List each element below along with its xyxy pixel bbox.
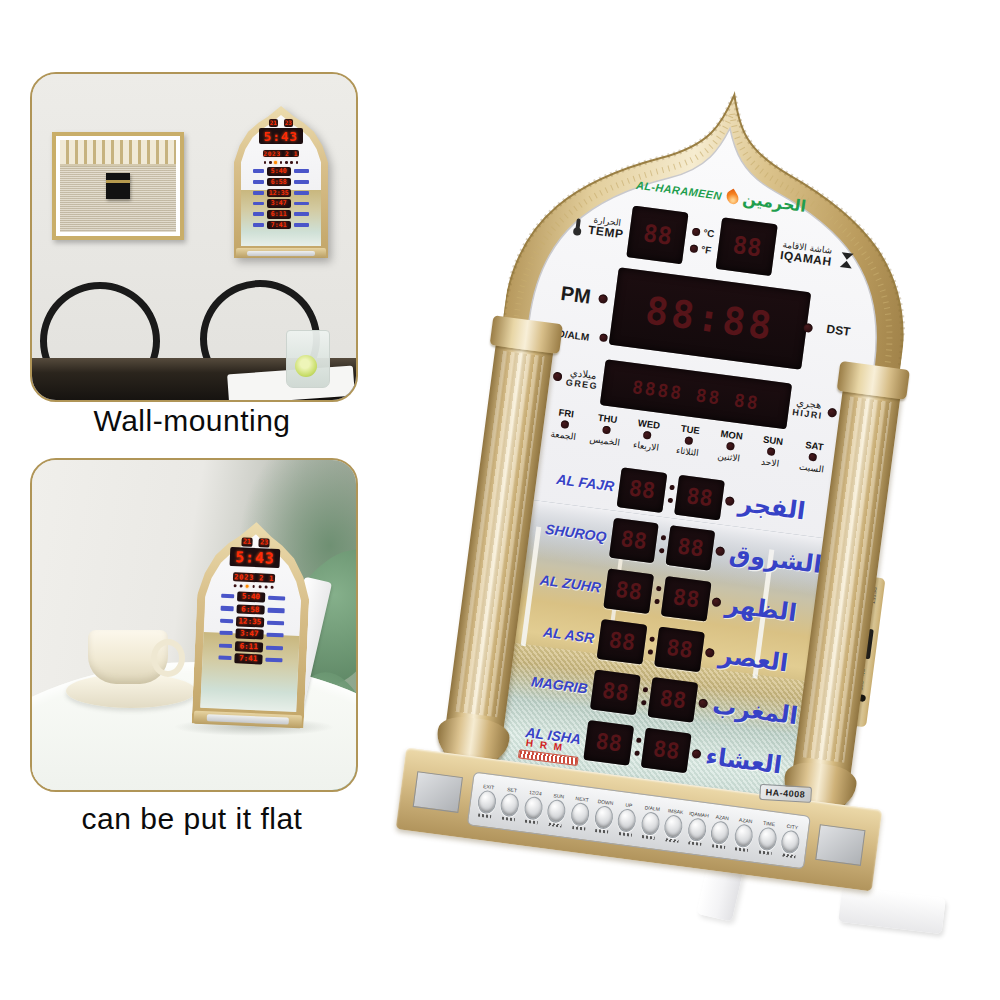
asr-minute-led: 88 bbox=[654, 626, 705, 672]
mini-day-indicators bbox=[264, 161, 299, 164]
mini-time-led: 5:43 bbox=[259, 128, 303, 144]
button-arabic-mark bbox=[572, 825, 585, 830]
magrib-hour-led: 88 bbox=[590, 669, 641, 715]
next-button[interactable] bbox=[570, 801, 591, 826]
button-label: AZAN bbox=[739, 817, 753, 824]
asr-indicator-dot bbox=[704, 648, 714, 658]
flat-placement-photo: 21 23 5:43 2023 2 1 5:40 6:58 12:35 3:47… bbox=[30, 458, 358, 792]
weekday-indicator-dot bbox=[767, 447, 776, 456]
mini-azan-clock-flat: 21 23 5:43 2023 2 1 5:40 6:58 12:35 3:47… bbox=[192, 520, 313, 729]
button-arabic-mark bbox=[548, 822, 561, 827]
asr-hour-led: 88 bbox=[597, 618, 648, 664]
time-button[interactable] bbox=[757, 826, 778, 851]
button-arabic-mark bbox=[689, 841, 702, 846]
mini-isha-led: 7:41 bbox=[267, 221, 291, 230]
mini-magrib-led: 6:11 bbox=[267, 210, 291, 219]
mini-fajr-led: 5:40 bbox=[267, 167, 291, 176]
mini-date-led: 2023 2 1 bbox=[263, 150, 300, 157]
mini-magrib-led: 6:11 bbox=[234, 641, 262, 652]
mini-asr-led: 3:47 bbox=[235, 629, 263, 640]
lime-slice bbox=[295, 355, 317, 377]
dst-indicator-dot bbox=[803, 323, 813, 333]
drink-glass bbox=[286, 330, 330, 388]
brand-name-ar: الحرمين bbox=[741, 189, 807, 216]
button-arabic-mark bbox=[595, 828, 608, 833]
page-canvas: 21 23 5:43 2023 2 1 5:40 6:58 12:35 3:47… bbox=[0, 0, 1000, 1000]
wall-mounting-photo: 21 23 5:43 2023 2 1 5:40 6:58 12:35 3:47… bbox=[30, 72, 358, 402]
button-arabic-mark bbox=[759, 850, 772, 855]
kaaba-picture bbox=[60, 140, 176, 232]
button-arabic-mark bbox=[478, 813, 491, 818]
button-label: SET bbox=[507, 787, 517, 793]
city-button[interactable] bbox=[780, 829, 801, 854]
down-button[interactable] bbox=[593, 804, 614, 829]
weekday-indicator-dot bbox=[684, 436, 693, 445]
temp-label-en: TEMP bbox=[587, 224, 624, 241]
day-alarm-indicator-dot bbox=[599, 333, 608, 342]
button-label: AZAN bbox=[715, 814, 729, 821]
brand-name-en: AL-HARAMEEN bbox=[636, 178, 723, 201]
weekday-tue: TUEالثلاثاء bbox=[665, 421, 712, 470]
weekday-mon: MONالاثنين bbox=[706, 427, 753, 476]
isha-hour-led: 88 bbox=[583, 720, 634, 766]
speaker-plate-left bbox=[413, 771, 463, 813]
mini-iqamah-led: 23 bbox=[284, 119, 293, 127]
mini-asr-led: 3:47 bbox=[267, 199, 291, 208]
flame-icon bbox=[724, 188, 741, 206]
fajr-minute-led: 88 bbox=[674, 474, 725, 520]
thermometer-icon bbox=[575, 218, 581, 231]
shuroq-hour-led: 88 bbox=[609, 517, 659, 563]
mini-zuhr-led: 12:35 bbox=[236, 616, 264, 627]
kaaba-picture-frame bbox=[52, 132, 184, 240]
button-arabic-mark bbox=[735, 847, 748, 852]
weekday-wed: WEDالاربعاء bbox=[623, 416, 670, 465]
button-arabic-mark bbox=[618, 832, 631, 837]
weekday-indicator-dot bbox=[643, 431, 652, 440]
mini-temp-led: 21 bbox=[269, 119, 278, 127]
time-led: 88:88 bbox=[609, 267, 812, 370]
day-alarm-button[interactable] bbox=[640, 810, 661, 835]
weekday-thu: THUالخميس bbox=[582, 410, 629, 459]
mini-shuroq-led: 6:58 bbox=[267, 178, 291, 187]
sun-button[interactable] bbox=[546, 798, 567, 823]
hijri-indicator-dot bbox=[827, 407, 837, 417]
button-arabic-mark bbox=[665, 838, 678, 843]
mini-iqamah-led: 23 bbox=[259, 538, 270, 547]
button-label: SUN bbox=[553, 793, 564, 799]
imsak-button[interactable] bbox=[663, 814, 684, 839]
celsius-indicator-dot bbox=[692, 227, 701, 236]
fahrenheit-indicator-dot bbox=[690, 244, 699, 253]
iqamah-button[interactable] bbox=[687, 817, 708, 842]
button-label: DOWN bbox=[597, 799, 613, 806]
set-button[interactable] bbox=[500, 792, 521, 817]
iqamah-led: 88 bbox=[716, 217, 778, 276]
button-arabic-mark bbox=[502, 816, 515, 821]
mini-shuroq-led: 6:58 bbox=[236, 604, 264, 615]
coffee-cup bbox=[88, 630, 168, 684]
cup-handle bbox=[151, 639, 185, 677]
mini-isha-led: 7:41 bbox=[234, 653, 262, 664]
azan-button[interactable] bbox=[710, 820, 731, 845]
button-label: EXIT bbox=[483, 783, 495, 789]
button-arabic-mark bbox=[525, 819, 538, 824]
flat-placement-caption: can be put it flat bbox=[30, 802, 354, 836]
weekday-fri: FRIالجمعة bbox=[541, 405, 588, 454]
isha-minute-led: 88 bbox=[641, 727, 692, 773]
weekday-sat: SATالسبت bbox=[789, 438, 836, 487]
temp-led: 88 bbox=[626, 206, 688, 265]
mini-time-led: 5:43 bbox=[230, 547, 281, 569]
fahrenheit-label: °F bbox=[700, 244, 711, 256]
weekday-indicator-dot bbox=[808, 453, 817, 462]
mini-temp-led: 21 bbox=[242, 537, 253, 546]
mini-date-led: 2023 2 1 bbox=[233, 572, 276, 583]
hourglass-icon bbox=[840, 252, 855, 269]
weekday-indicator-dot bbox=[602, 425, 611, 434]
button-arabic-mark bbox=[642, 835, 655, 840]
hour-format-button[interactable] bbox=[523, 795, 544, 820]
zuhr-hour-led: 88 bbox=[603, 568, 654, 614]
mini-zuhr-led: 12:35 bbox=[267, 189, 291, 198]
dst-label: DST bbox=[826, 322, 852, 339]
exit-button[interactable] bbox=[476, 789, 497, 814]
greg-indicator-dot bbox=[553, 371, 563, 381]
mini-azan-clock-wall: 21 23 5:43 2023 2 1 5:40 6:58 12:35 3:47… bbox=[234, 106, 328, 258]
button-label: D/ALM bbox=[644, 805, 660, 812]
button-arabic-mark bbox=[712, 844, 725, 849]
wall-mounting-caption: Wall-mounting bbox=[30, 404, 354, 438]
magrib-indicator-dot bbox=[698, 698, 708, 708]
button-label: IQAMAH bbox=[689, 811, 709, 819]
magrib-minute-led: 88 bbox=[648, 677, 699, 723]
shuroq-minute-led: 88 bbox=[665, 525, 715, 571]
speaker-plate-right bbox=[815, 824, 865, 866]
shuroq-indicator-dot bbox=[715, 546, 725, 556]
azan-clock: AL-HARAMEEN الحرمين الحرارة TEMP 88 °C °… bbox=[394, 56, 973, 904]
celsius-label: °C bbox=[703, 227, 716, 239]
weekday-indicator-dot bbox=[726, 442, 735, 451]
pm-label: PM bbox=[559, 282, 592, 309]
button-label: 12/24 bbox=[529, 789, 542, 796]
weekday-sun: SUNالاحد bbox=[747, 432, 794, 481]
hijri-label-en: HIJRI bbox=[792, 408, 823, 421]
fajr-hour-led: 88 bbox=[617, 467, 668, 513]
pm-indicator-dot bbox=[598, 294, 608, 304]
fajr-indicator-dot bbox=[724, 496, 734, 506]
weekday-indicator-dot bbox=[560, 420, 569, 429]
button-label: CITY bbox=[786, 823, 798, 829]
model-number-plate: HA-4008 bbox=[759, 784, 811, 803]
button-label: TIME bbox=[763, 820, 776, 827]
mini-day-indicators bbox=[233, 584, 273, 589]
up-button[interactable] bbox=[617, 807, 638, 832]
zuhr-minute-led: 88 bbox=[661, 575, 712, 621]
button-arabic-mark bbox=[782, 853, 795, 858]
button-label: UP bbox=[625, 802, 633, 808]
button-label: IMSAK bbox=[668, 808, 684, 815]
button-label: NEXT bbox=[575, 796, 589, 803]
zuhr-indicator-dot bbox=[711, 597, 721, 607]
mini-fajr-led: 5:40 bbox=[237, 592, 265, 603]
isha-indicator-dot bbox=[691, 749, 701, 759]
kaaba-cube bbox=[106, 173, 130, 199]
azan-button[interactable] bbox=[733, 823, 754, 848]
